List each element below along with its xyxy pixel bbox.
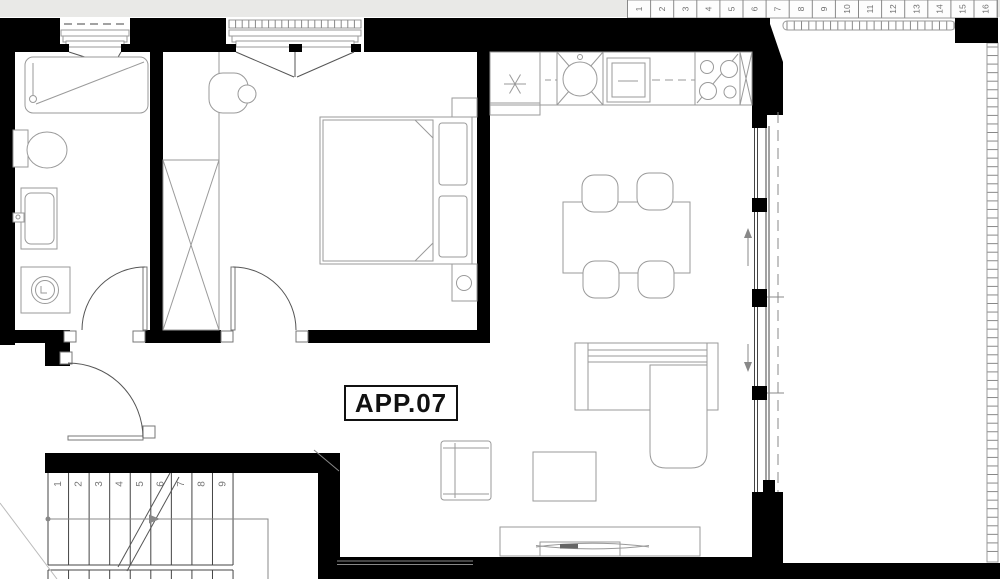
floor-plan: 12345678910111213141516 [0, 0, 1000, 579]
wall-corridor-2 [145, 330, 163, 343]
wall-bath-bedroom [150, 52, 163, 343]
tread-number: 14 [934, 4, 944, 14]
wall-bedroom-living [477, 52, 490, 343]
dining-chair [583, 261, 619, 298]
tread-number: 16 [981, 4, 991, 14]
tread-number: 3 [94, 481, 105, 487]
tread-number: 15 [957, 4, 967, 14]
tread-number: 2 [73, 481, 84, 487]
upper-stair-treads: 12345678910111213141516 [628, 0, 998, 18]
nightstand-bottom [452, 264, 477, 301]
tread-number: 1 [634, 6, 644, 11]
armchair [441, 441, 491, 500]
wall-balcony-door-step [763, 480, 775, 493]
tread-number: 13 [911, 4, 921, 14]
shower [25, 57, 148, 113]
bedroom-door-leaf [231, 267, 235, 330]
tread-number: 9 [819, 6, 829, 11]
tread-number: 11 [865, 4, 875, 13]
tread-number: 7 [176, 481, 187, 487]
wardrobe [163, 160, 219, 330]
dining-chair [582, 175, 618, 212]
wall-corridor-4 [308, 330, 477, 343]
apartment-label-text: APP.07 [355, 388, 447, 418]
entrance-door-leaf [68, 436, 143, 440]
tread-number: 4 [703, 6, 713, 11]
tread-number: 10 [842, 4, 852, 14]
wall-landing [318, 473, 340, 579]
nightstand-top [452, 98, 477, 117]
apartment-label: APP.07 [345, 386, 457, 420]
floor-plan-drawing: 12345678910111213141516 [0, 0, 1000, 579]
tread-number: 7 [773, 6, 783, 11]
pillow [439, 123, 467, 185]
tread-number: 2 [657, 6, 667, 11]
tread-number: 3 [680, 6, 690, 11]
tread-number: 6 [750, 6, 760, 11]
tread-number: 9 [217, 481, 228, 487]
tread-number: 1 [53, 481, 64, 487]
tread-number: 5 [135, 481, 146, 487]
wall-bottom-living [340, 557, 752, 579]
bed [320, 117, 472, 264]
toilet [13, 130, 67, 168]
tread-number: 12 [888, 4, 898, 14]
wall-left [0, 18, 15, 345]
sofa-chaise [650, 365, 707, 468]
washing-machine [21, 267, 70, 313]
tread-number: 8 [796, 6, 806, 11]
dining-chair [637, 173, 673, 210]
bathroom-door-leaf [143, 267, 147, 330]
tread-number: 4 [114, 481, 125, 487]
tread-number: 5 [726, 6, 736, 11]
wall-balcony-door-stub [752, 492, 783, 564]
wall-corridor-3 [163, 330, 221, 343]
wall-stair [45, 453, 340, 473]
dining-chair [638, 261, 674, 298]
tread-number: 8 [197, 481, 208, 487]
pillow [439, 196, 467, 257]
wall-pier-top-right [955, 18, 998, 43]
balcony-railing-right [987, 43, 998, 562]
wall-bottom-balcony [752, 563, 1000, 579]
